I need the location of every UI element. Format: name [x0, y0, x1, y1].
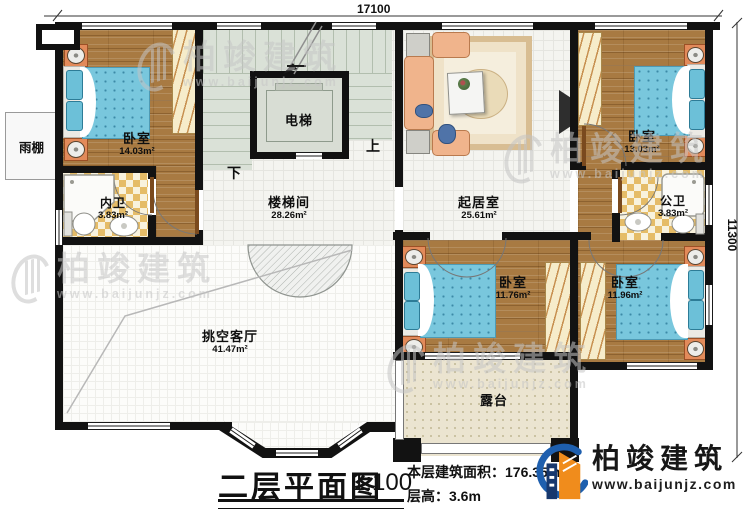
- pillow: [66, 101, 83, 131]
- floor-bedroom-topright-vestibule: [578, 170, 612, 241]
- window: [332, 22, 376, 30]
- room-label-terrace: 露台: [480, 394, 508, 409]
- room-label-elevator: 电梯: [285, 114, 313, 129]
- floor-height-label: 层高：: [407, 488, 449, 504]
- lamp-icon: [687, 47, 704, 63]
- nightstand: [684, 338, 707, 360]
- floor-height-value: 3.6m: [449, 488, 481, 504]
- pillow: [404, 301, 420, 330]
- pillow: [688, 270, 704, 300]
- nightstand: [684, 44, 707, 66]
- wardrobe: [172, 28, 197, 134]
- lamp-icon: [687, 249, 704, 265]
- wall: [55, 166, 156, 173]
- floorplan-canvas: 雨棚: [0, 0, 750, 516]
- wall: [578, 162, 586, 170]
- wall: [570, 22, 578, 170]
- stair-up-label: 上: [366, 136, 380, 156]
- pillow: [66, 70, 83, 100]
- pillow: [688, 300, 704, 330]
- plan-scale: 1:100: [352, 469, 412, 497]
- window: [425, 352, 520, 360]
- wall: [502, 232, 591, 240]
- room-label-stairwell: 楼梯间 28.26m²: [268, 196, 310, 222]
- window: [627, 362, 697, 370]
- room-label-bedroom-topleft: 卧室 14.03m²: [119, 132, 154, 158]
- wardrobe: [545, 262, 572, 354]
- wardrobe: [580, 262, 606, 360]
- dimension-width: 17100: [357, 2, 390, 16]
- pillow: [404, 272, 420, 301]
- brand-logo-icon: [534, 442, 588, 508]
- elevator-counterweight: [275, 83, 323, 91]
- terrace-pillar: [393, 438, 421, 462]
- lamp-icon: [687, 138, 704, 154]
- window: [705, 285, 713, 325]
- window: [55, 210, 63, 245]
- stair-down-label: 下: [227, 163, 241, 183]
- wall: [621, 162, 712, 170]
- person-figure: [415, 104, 433, 118]
- nightstand: [64, 138, 88, 161]
- person-figure: [438, 124, 456, 144]
- wall: [570, 240, 578, 460]
- canopy-label: 雨棚: [19, 137, 44, 156]
- sofa: [404, 56, 434, 130]
- rain-canopy: 雨棚: [5, 112, 58, 180]
- floor-area-label: 本层建筑面积：: [407, 464, 505, 480]
- window: [88, 422, 170, 430]
- wall: [612, 170, 620, 179]
- table-plant: [458, 78, 470, 90]
- room-label-bathroom-public: 公卫 3.83m²: [658, 195, 688, 220]
- elevator-door: [296, 152, 322, 159]
- wall: [148, 215, 156, 245]
- room-label-bedroom-bottomright: 卧室 11.96m²: [608, 276, 643, 302]
- room-label-bedroom-bottommid: 卧室 11.76m²: [496, 276, 531, 302]
- floor-bedroom-topleft-vestibule: [156, 166, 195, 237]
- wall: [367, 422, 398, 432]
- room-label-void-living: 挑空客厅 41.47m²: [202, 330, 258, 356]
- wall: [395, 22, 403, 187]
- room-label-bedroom-topright: 卧室 13.03m²: [624, 130, 659, 156]
- brand-logo: 柏竣建筑 www.baijunjz.com: [534, 442, 737, 508]
- window: [705, 185, 713, 225]
- floor-void-baywindow: [222, 422, 370, 453]
- end-table: [406, 130, 430, 154]
- nightstand: [684, 135, 707, 157]
- wall: [612, 213, 620, 242]
- pillow: [689, 100, 705, 130]
- brand-website: www.baijunjz.com: [592, 476, 737, 492]
- window: [217, 22, 261, 30]
- armchair: [432, 32, 470, 58]
- lamp-icon: [687, 341, 704, 357]
- window: [82, 22, 172, 30]
- lamp-icon: [405, 249, 423, 265]
- dimension-height: 11300: [725, 215, 739, 255]
- title-underline: [218, 499, 404, 509]
- stair-flight-left: [203, 73, 252, 170]
- room-label-bathroom-inner: 内卫 3.83m²: [98, 197, 128, 222]
- floor-height-line: 层高：3.6m: [407, 486, 481, 506]
- wall: [148, 166, 156, 179]
- stair-flight-right: [347, 73, 392, 140]
- wardrobe: [578, 32, 602, 126]
- terrace-railing-left: [395, 360, 404, 440]
- lamp-icon: [67, 141, 85, 158]
- stair-flight-top: [203, 30, 392, 73]
- terrace-railing: [421, 443, 551, 454]
- end-table: [406, 33, 430, 57]
- wall: [195, 230, 203, 245]
- room-label-living: 起居室 25.61m²: [458, 196, 500, 222]
- wall: [55, 237, 203, 245]
- wall: [195, 22, 203, 190]
- pillow: [689, 69, 705, 99]
- window: [442, 22, 533, 30]
- watermark-logo-icon: [12, 250, 50, 302]
- canopy-corner-post: [36, 24, 80, 50]
- wall: [395, 240, 403, 358]
- brand-name: 柏竣建筑: [592, 442, 737, 476]
- window: [595, 22, 687, 30]
